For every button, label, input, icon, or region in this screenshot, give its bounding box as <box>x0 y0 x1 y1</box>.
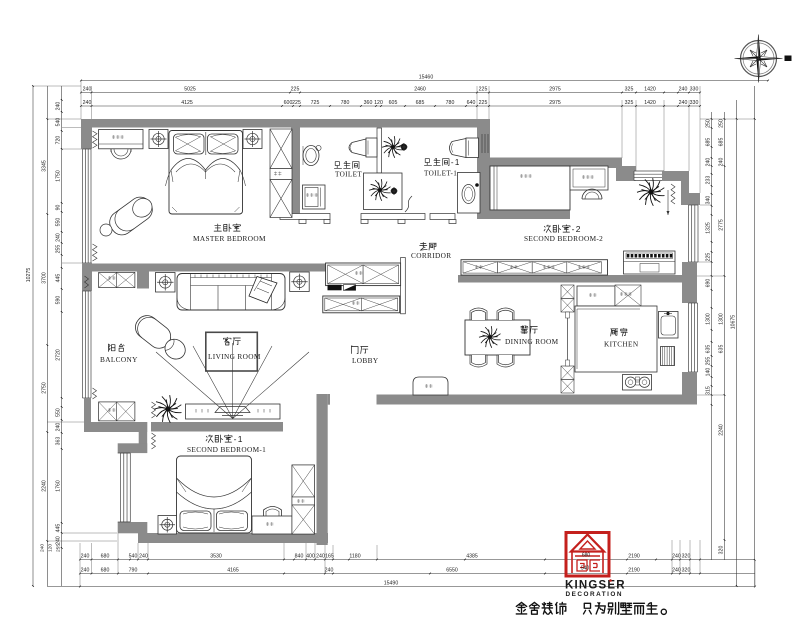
svg-text:BALCONY: BALCONY <box>100 355 138 364</box>
svg-text:320: 320 <box>682 568 691 574</box>
svg-text:685: 685 <box>706 138 712 147</box>
svg-text:240: 240 <box>672 568 681 574</box>
svg-text:-: - <box>572 224 575 234</box>
svg-text:SECOND BEDROOM-1: SECOND BEDROOM-1 <box>187 445 266 454</box>
svg-text:TOILET: TOILET <box>335 171 362 179</box>
svg-text:240: 240 <box>672 554 681 560</box>
svg-text:360: 360 <box>364 100 373 106</box>
svg-text:363: 363 <box>56 437 62 446</box>
svg-text:2240: 2240 <box>41 480 47 492</box>
svg-text:1: 1 <box>238 434 243 444</box>
svg-text:680: 680 <box>101 554 110 560</box>
svg-text:2240: 2240 <box>719 424 725 436</box>
svg-text:255: 255 <box>706 357 712 366</box>
svg-text:1420: 1420 <box>644 87 656 93</box>
svg-text:5025: 5025 <box>184 87 196 93</box>
svg-text:3345: 3345 <box>41 160 47 172</box>
svg-text:225: 225 <box>479 87 488 93</box>
svg-text:725: 725 <box>311 100 320 106</box>
svg-text:635: 635 <box>706 345 712 354</box>
svg-text:685: 685 <box>416 100 425 106</box>
svg-text:240: 240 <box>83 87 92 93</box>
svg-text:550: 550 <box>56 218 62 227</box>
svg-text:225: 225 <box>479 100 488 106</box>
svg-text:90: 90 <box>56 205 62 211</box>
svg-text:340: 340 <box>706 196 712 205</box>
svg-text:680: 680 <box>101 568 110 574</box>
svg-text:4125: 4125 <box>181 100 193 106</box>
svg-text:DECORATION: DECORATION <box>566 591 623 598</box>
svg-text:240: 240 <box>679 100 688 106</box>
svg-text:240: 240 <box>325 568 334 574</box>
svg-text:240: 240 <box>81 568 90 574</box>
svg-text:685: 685 <box>719 138 725 147</box>
svg-text:2460: 2460 <box>414 87 426 93</box>
svg-text:CORRIDOR: CORRIDOR <box>411 251 452 260</box>
svg-text:255: 255 <box>56 245 62 254</box>
svg-text:-: - <box>451 158 454 167</box>
svg-text:250: 250 <box>719 119 725 128</box>
svg-text:1300: 1300 <box>706 313 712 325</box>
svg-text:1180: 1180 <box>349 554 360 560</box>
svg-text:1300: 1300 <box>719 313 725 325</box>
svg-text:840: 840 <box>295 554 304 560</box>
svg-text:240: 240 <box>56 423 62 432</box>
svg-text:233: 233 <box>706 176 712 185</box>
svg-text:LIVING ROOM: LIVING ROOM <box>208 352 261 361</box>
svg-text:720: 720 <box>56 136 62 145</box>
svg-text:330: 330 <box>690 87 699 93</box>
svg-text:330: 330 <box>690 100 699 106</box>
svg-text:640: 640 <box>467 100 476 106</box>
svg-text:2775: 2775 <box>719 219 725 231</box>
svg-text:240: 240 <box>706 158 712 167</box>
svg-text:240: 240 <box>83 100 92 106</box>
svg-text:2975: 2975 <box>549 100 561 106</box>
svg-text:2190: 2190 <box>628 568 640 574</box>
svg-text:255: 255 <box>56 544 62 552</box>
svg-text:690: 690 <box>706 279 712 288</box>
svg-text:4165: 4165 <box>227 568 239 574</box>
svg-text:120: 120 <box>48 544 54 552</box>
svg-text:140: 140 <box>706 368 712 377</box>
svg-text:LOBBY: LOBBY <box>352 356 379 365</box>
svg-text:540: 540 <box>581 566 590 572</box>
svg-text:240: 240 <box>679 87 688 93</box>
svg-text:15460: 15460 <box>419 75 434 81</box>
svg-text:315: 315 <box>706 386 712 395</box>
svg-text:3530: 3530 <box>210 554 222 560</box>
svg-text:2750: 2750 <box>41 382 47 394</box>
svg-text:320: 320 <box>719 546 725 555</box>
svg-text:240: 240 <box>56 233 62 242</box>
svg-text:240: 240 <box>81 554 90 560</box>
svg-text:KINGSER: KINGSER <box>565 580 626 592</box>
svg-text:325: 325 <box>625 87 634 93</box>
svg-text:MASTER BEDROOM: MASTER BEDROOM <box>193 234 266 243</box>
svg-text:605: 605 <box>389 100 398 106</box>
svg-text:3700: 3700 <box>41 272 47 284</box>
svg-text:240: 240 <box>719 158 725 167</box>
svg-text:780: 780 <box>446 100 455 106</box>
svg-text:10275: 10275 <box>26 268 32 283</box>
svg-text:15490: 15490 <box>384 581 399 587</box>
svg-text:240: 240 <box>316 554 325 560</box>
svg-text:2190: 2190 <box>628 554 640 560</box>
svg-text:1760: 1760 <box>56 480 62 492</box>
svg-text:445: 445 <box>56 524 62 533</box>
svg-text:240: 240 <box>56 102 62 111</box>
svg-text:120: 120 <box>374 100 383 106</box>
svg-text:240: 240 <box>56 536 62 545</box>
svg-text:445: 445 <box>56 274 62 283</box>
svg-text:6550: 6550 <box>446 568 458 574</box>
svg-text:540: 540 <box>129 554 138 560</box>
svg-text:TOILET-1: TOILET-1 <box>424 170 457 178</box>
svg-text:635: 635 <box>719 345 725 354</box>
svg-text:600: 600 <box>284 100 293 106</box>
svg-text:2: 2 <box>576 224 581 234</box>
svg-text:240: 240 <box>40 544 46 552</box>
svg-text:225: 225 <box>292 100 301 106</box>
svg-text:790: 790 <box>129 568 138 574</box>
svg-text:DINING ROOM: DINING ROOM <box>505 337 559 346</box>
svg-text:1420: 1420 <box>644 100 656 106</box>
svg-text:KITCHEN: KITCHEN <box>604 340 639 349</box>
svg-text:2720: 2720 <box>56 349 62 361</box>
svg-text:225: 225 <box>706 253 712 262</box>
svg-text:1325: 1325 <box>706 222 712 234</box>
svg-text:240: 240 <box>139 554 148 560</box>
svg-text:780: 780 <box>341 100 350 106</box>
svg-text:10675: 10675 <box>731 315 737 330</box>
svg-text:550: 550 <box>56 408 62 417</box>
svg-text:680: 680 <box>582 553 591 559</box>
svg-text:165: 165 <box>325 554 334 560</box>
svg-text:1: 1 <box>455 158 460 167</box>
svg-text:250: 250 <box>706 119 712 128</box>
svg-text:400: 400 <box>306 554 315 560</box>
svg-text:2975: 2975 <box>549 87 561 93</box>
svg-text:SECOND BEDROOM-2: SECOND BEDROOM-2 <box>524 234 603 243</box>
svg-text:1750: 1750 <box>56 170 62 182</box>
svg-text:-: - <box>234 434 237 444</box>
svg-text:325: 325 <box>625 100 634 106</box>
svg-text:590: 590 <box>56 296 62 305</box>
svg-text:4385: 4385 <box>466 554 478 560</box>
svg-text:225: 225 <box>291 87 300 93</box>
svg-text:320: 320 <box>682 554 691 560</box>
